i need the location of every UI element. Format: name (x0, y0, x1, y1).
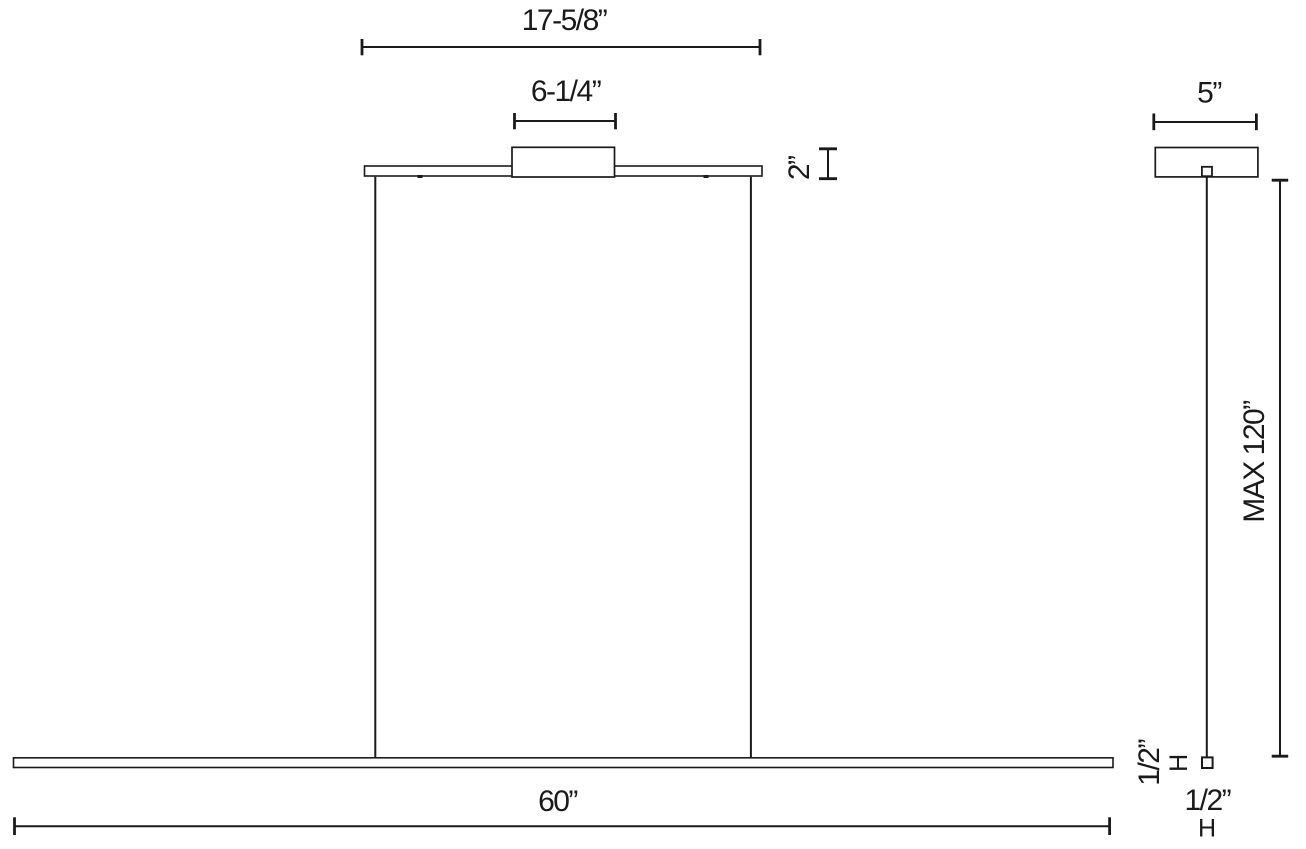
svg-text:60”: 60” (538, 785, 577, 818)
svg-text:6-1/4”: 6-1/4” (531, 75, 601, 108)
svg-text:MAX 120”: MAX 120” (1238, 401, 1271, 523)
svg-text:1/2”: 1/2” (1133, 740, 1166, 786)
svg-text:2”: 2” (783, 156, 816, 180)
svg-text:5”: 5” (1197, 76, 1221, 109)
svg-text:H: H (1165, 754, 1193, 772)
svg-text:1/2”: 1/2” (1184, 784, 1230, 817)
svg-text:17-5/8”: 17-5/8” (522, 4, 607, 37)
svg-text:H: H (1198, 814, 1216, 842)
